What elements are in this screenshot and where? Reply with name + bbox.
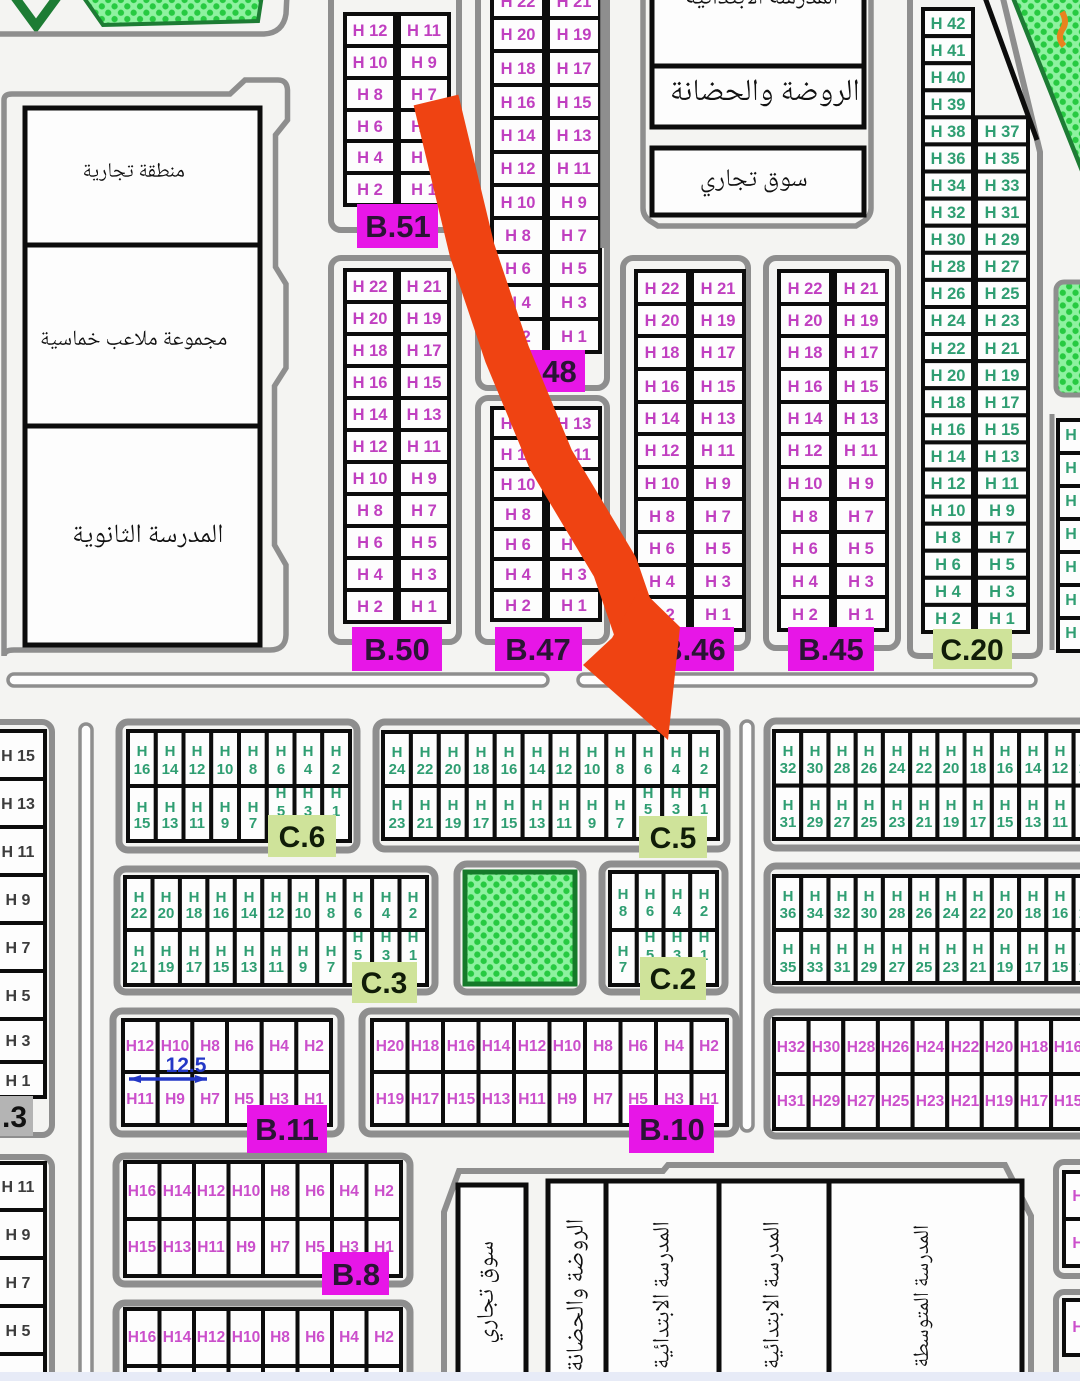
- svg-text:16: 16: [1052, 905, 1069, 922]
- svg-text:11: 11: [189, 815, 205, 832]
- svg-text:14: 14: [241, 905, 258, 922]
- svg-text:H13: H13: [163, 1239, 192, 1256]
- svg-text:H: H: [165, 743, 176, 760]
- svg-text:21: 21: [916, 814, 933, 831]
- svg-text:29: 29: [861, 959, 878, 976]
- svg-text:H 11: H 11: [2, 844, 35, 861]
- svg-text:H8: H8: [270, 1329, 290, 1346]
- svg-text:20: 20: [997, 905, 1014, 922]
- svg-text:14: 14: [529, 761, 546, 778]
- svg-text:H: H: [892, 797, 903, 814]
- svg-text:H 2: H 2: [505, 597, 531, 615]
- svg-text:12: 12: [268, 905, 285, 922]
- svg-text:H 20: H 20: [931, 367, 966, 385]
- svg-text:17: 17: [473, 815, 490, 832]
- svg-text:4: 4: [382, 905, 391, 922]
- svg-text:H: H: [189, 943, 200, 960]
- svg-text:25: 25: [861, 814, 878, 831]
- svg-text:H: H: [1065, 559, 1077, 576]
- svg-text:H8: H8: [593, 1038, 613, 1055]
- svg-text:8: 8: [249, 761, 257, 778]
- svg-text:28: 28: [889, 905, 906, 922]
- svg-text:30: 30: [807, 760, 824, 777]
- svg-text:H: H: [672, 886, 683, 903]
- svg-text:H 14: H 14: [353, 406, 389, 424]
- svg-text:H 4: H 4: [649, 573, 676, 591]
- svg-text:H4: H4: [269, 1038, 289, 1055]
- svg-text:H: H: [645, 929, 656, 946]
- svg-text:H 16: H 16: [501, 94, 536, 112]
- svg-text:4: 4: [304, 761, 313, 778]
- svg-text:H 12: H 12: [788, 442, 823, 460]
- svg-text:10: 10: [295, 905, 312, 922]
- svg-text:H: H: [699, 929, 710, 946]
- svg-text:H18: H18: [411, 1038, 440, 1055]
- svg-text:H10: H10: [553, 1038, 581, 1055]
- svg-text:H: H: [810, 743, 821, 760]
- svg-text:H 20: H 20: [353, 310, 388, 328]
- svg-text:H 21: H 21: [844, 280, 879, 298]
- svg-text:H: H: [892, 743, 903, 760]
- svg-text:H: H: [220, 799, 231, 816]
- svg-text:H 7: H 7: [411, 502, 437, 520]
- svg-text:19: 19: [997, 959, 1014, 976]
- svg-text:H 6: H 6: [935, 556, 961, 574]
- svg-text:H: H: [1055, 941, 1066, 958]
- svg-text:12: 12: [556, 761, 573, 778]
- svg-text:H: H: [1000, 941, 1011, 958]
- svg-text:H28: H28: [847, 1039, 876, 1056]
- svg-text:H 22: H 22: [931, 340, 966, 358]
- svg-text:B.47: B.47: [505, 632, 570, 667]
- svg-text:H: H: [671, 744, 682, 761]
- svg-text:H 3: H 3: [411, 566, 437, 584]
- svg-text:12: 12: [189, 761, 206, 778]
- svg-text:H: H: [837, 797, 848, 814]
- svg-text:H27: H27: [847, 1093, 875, 1110]
- svg-text:H: H: [532, 744, 543, 761]
- svg-text:H9: H9: [236, 1239, 256, 1256]
- svg-text:H16: H16: [447, 1038, 476, 1055]
- svg-text:H: H: [244, 943, 255, 960]
- svg-text:H: H: [892, 888, 903, 905]
- svg-text:H: H: [331, 785, 342, 802]
- svg-text:H 6: H 6: [505, 536, 531, 554]
- svg-text:H: H: [810, 797, 821, 814]
- svg-text:H2: H2: [374, 1183, 394, 1200]
- svg-text:H: H: [1028, 743, 1039, 760]
- svg-text:H 1: H 1: [561, 328, 587, 346]
- svg-text:H 1: H 1: [989, 610, 1015, 628]
- svg-text:H 10: H 10: [788, 475, 823, 493]
- svg-text:H: H: [919, 797, 930, 814]
- svg-text:H: H: [587, 744, 598, 761]
- svg-text:H 18: H 18: [788, 344, 823, 362]
- svg-text:20: 20: [445, 761, 462, 778]
- svg-text:H: H: [618, 943, 629, 960]
- svg-text:6: 6: [646, 903, 654, 920]
- svg-text:C.2: C.2: [650, 963, 697, 996]
- svg-text:H: H: [326, 889, 337, 906]
- svg-text:H 17: H 17: [701, 344, 736, 362]
- svg-text:19: 19: [158, 959, 175, 976]
- svg-text:H 13: H 13: [844, 410, 879, 428]
- svg-text:H: H: [615, 744, 626, 761]
- svg-text:H: H: [448, 744, 459, 761]
- svg-text:H: H: [946, 888, 957, 905]
- svg-text:17: 17: [970, 814, 987, 831]
- svg-text:H 23: H 23: [985, 312, 1020, 330]
- svg-text:H: H: [587, 797, 598, 814]
- svg-text:H 14: H 14: [501, 127, 537, 145]
- svg-text:8: 8: [619, 903, 627, 920]
- svg-text:H: H: [783, 797, 794, 814]
- svg-text:H: H: [946, 941, 957, 958]
- svg-text:22: 22: [417, 761, 434, 778]
- svg-text:H: H: [810, 941, 821, 958]
- svg-text:H: H: [946, 743, 957, 760]
- svg-text:H: H: [408, 889, 419, 906]
- svg-text:H: H: [1028, 941, 1039, 958]
- svg-text:H 39: H 39: [931, 96, 966, 114]
- svg-text:C.6: C.6: [279, 821, 326, 854]
- svg-text:H: H: [1065, 460, 1077, 477]
- svg-text:H7: H7: [270, 1239, 290, 1256]
- svg-text:H: H: [892, 941, 903, 958]
- svg-text:H 21: H 21: [557, 0, 592, 11]
- svg-text:H: H: [165, 799, 176, 816]
- svg-text:2: 2: [700, 761, 708, 778]
- svg-text:H15: H15: [1054, 1093, 1080, 1110]
- svg-text:7: 7: [619, 959, 627, 976]
- svg-text:H 22: H 22: [353, 278, 388, 296]
- svg-text:H16: H16: [1054, 1039, 1080, 1056]
- svg-text:H: H: [1028, 888, 1039, 905]
- svg-text:34: 34: [807, 905, 824, 922]
- svg-text:H 18: H 18: [501, 60, 536, 78]
- svg-text:H 15: H 15: [407, 374, 442, 392]
- svg-text:15: 15: [501, 815, 518, 832]
- svg-text:H11: H11: [197, 1239, 225, 1256]
- svg-text:H24: H24: [916, 1039, 945, 1056]
- svg-text:H8: H8: [270, 1183, 290, 1200]
- svg-text:H 16: H 16: [353, 374, 388, 392]
- svg-text:H: H: [504, 797, 515, 814]
- svg-text:10: 10: [584, 761, 601, 778]
- svg-text:23: 23: [389, 815, 406, 832]
- svg-text:H 1: H 1: [705, 606, 731, 624]
- svg-text:H 5: H 5: [6, 1323, 31, 1340]
- svg-text:H: H: [216, 943, 227, 960]
- svg-text:H: H: [420, 744, 431, 761]
- svg-text:H 11: H 11: [985, 475, 1019, 493]
- svg-text:H16: H16: [128, 1329, 157, 1346]
- svg-text:H: H: [220, 743, 231, 760]
- svg-text:H 15: H 15: [985, 421, 1020, 439]
- svg-text:H 3: H 3: [561, 294, 587, 312]
- svg-text:H 34: H 34: [931, 177, 967, 195]
- svg-text:H 4: H 4: [935, 583, 962, 601]
- svg-text:H 17: H 17: [844, 344, 879, 362]
- svg-text:H 8: H 8: [649, 508, 675, 526]
- svg-text:H: H: [864, 888, 875, 905]
- svg-text:H 14: H 14: [788, 410, 824, 428]
- svg-text:H: H: [134, 943, 145, 960]
- svg-text:H2: H2: [304, 1038, 324, 1055]
- svg-text:H 30: H 30: [931, 231, 966, 249]
- svg-text:H 2: H 2: [935, 610, 961, 628]
- svg-text:H 19: H 19: [985, 367, 1020, 385]
- svg-text:H: H: [559, 744, 570, 761]
- svg-text:H 6: H 6: [505, 260, 531, 278]
- svg-text:H: H: [161, 943, 172, 960]
- svg-text:H 13: H 13: [557, 127, 592, 145]
- svg-text:H12: H12: [197, 1183, 225, 1200]
- svg-text:H 9: H 9: [411, 470, 437, 488]
- svg-text:11: 11: [1052, 814, 1068, 831]
- svg-text:H: H: [783, 941, 794, 958]
- svg-text:H 15: H 15: [557, 94, 592, 112]
- svg-text:H 32: H 32: [931, 204, 966, 222]
- svg-text:H 11: H 11: [407, 22, 441, 40]
- svg-text:H: H: [1065, 493, 1077, 510]
- svg-text:H 17: H 17: [985, 394, 1020, 412]
- svg-text:H: H: [353, 889, 364, 906]
- svg-text:21: 21: [131, 959, 148, 976]
- svg-text:18: 18: [970, 760, 987, 777]
- svg-text:H: H: [973, 797, 984, 814]
- svg-text:23: 23: [943, 959, 960, 976]
- svg-text:H 8: H 8: [357, 502, 383, 520]
- svg-text:H 14: H 14: [645, 410, 681, 428]
- svg-text:H 26: H 26: [931, 285, 966, 303]
- svg-text:22: 22: [131, 905, 148, 922]
- svg-text:21: 21: [970, 959, 987, 976]
- svg-text:B.45: B.45: [798, 632, 863, 667]
- svg-text:H 15: H 15: [1, 748, 35, 765]
- svg-text:H 2: H 2: [792, 606, 818, 624]
- svg-text:29: 29: [807, 814, 824, 831]
- svg-text:C.20: C.20: [940, 634, 1003, 667]
- svg-text:H6: H6: [628, 1038, 648, 1055]
- svg-text:H 18: H 18: [353, 342, 388, 360]
- svg-text:H 5: H 5: [705, 540, 731, 558]
- svg-text:21: 21: [417, 815, 434, 832]
- svg-text:24: 24: [389, 761, 406, 778]
- svg-text:H 15: H 15: [701, 378, 736, 396]
- svg-text:H: H: [1065, 526, 1077, 543]
- svg-text:3: 3: [672, 801, 680, 818]
- svg-text:H: H: [643, 785, 654, 802]
- svg-text:H: H: [381, 889, 392, 906]
- svg-text:H 12: H 12: [353, 438, 388, 456]
- svg-text:.3: .3: [2, 1101, 27, 1134]
- svg-text:H 4: H 4: [357, 149, 384, 167]
- svg-text:H: H: [248, 799, 259, 816]
- svg-text:H 12: H 12: [645, 442, 680, 460]
- svg-text:H 11: H 11: [407, 438, 441, 456]
- svg-text:H 8: H 8: [792, 508, 818, 526]
- svg-text:5: 5: [644, 801, 652, 818]
- svg-text:H 38: H 38: [931, 123, 966, 141]
- svg-text:H: H: [559, 797, 570, 814]
- svg-text:H: H: [134, 889, 145, 906]
- svg-text:22: 22: [970, 905, 987, 922]
- svg-text:13: 13: [162, 815, 179, 832]
- svg-text:H: H: [810, 888, 821, 905]
- svg-text:H 20: H 20: [501, 26, 536, 44]
- svg-text:13: 13: [241, 959, 258, 976]
- svg-text:H26: H26: [881, 1039, 910, 1056]
- svg-text:28: 28: [834, 760, 851, 777]
- svg-text:H 8: H 8: [357, 86, 383, 104]
- svg-text:H: H: [216, 889, 227, 906]
- svg-text:16: 16: [501, 761, 518, 778]
- svg-text:H: H: [973, 941, 984, 958]
- svg-text:8: 8: [616, 761, 624, 778]
- svg-text:H: H: [1028, 797, 1039, 814]
- svg-text:9: 9: [221, 815, 229, 832]
- svg-text:20: 20: [943, 760, 960, 777]
- svg-text:H 16: H 16: [931, 421, 966, 439]
- svg-text:H 13: H 13: [1, 796, 35, 813]
- svg-text:H: H: [837, 941, 848, 958]
- svg-text:10: 10: [217, 761, 234, 778]
- svg-text:H 7: H 7: [561, 227, 587, 245]
- svg-text:H9: H9: [557, 1091, 577, 1108]
- svg-text:H 19: H 19: [701, 312, 736, 330]
- svg-text:H: H: [1000, 743, 1011, 760]
- svg-text:H 1: H 1: [6, 1073, 31, 1090]
- svg-text:H: H: [137, 743, 148, 760]
- svg-text:H: H: [864, 941, 875, 958]
- svg-text:H 5: H 5: [411, 534, 437, 552]
- svg-text:20: 20: [158, 905, 175, 922]
- svg-text:H: H: [420, 797, 431, 814]
- svg-text:H 40: H 40: [931, 69, 966, 87]
- svg-text:13: 13: [1025, 814, 1042, 831]
- svg-text:H: H: [476, 744, 487, 761]
- svg-text:C.5: C.5: [650, 822, 697, 855]
- svg-text:H: H: [276, 785, 287, 802]
- svg-text:H10: H10: [232, 1329, 260, 1346]
- svg-text:H 33: H 33: [985, 177, 1020, 195]
- svg-text:H 42: H 42: [931, 15, 966, 33]
- svg-text:H 9: H 9: [6, 1227, 31, 1244]
- svg-text:18: 18: [186, 905, 203, 922]
- svg-text:16: 16: [997, 760, 1014, 777]
- svg-text:H 5: H 5: [989, 556, 1015, 574]
- svg-text:H 8: H 8: [935, 529, 961, 547]
- svg-text:H: H: [643, 744, 654, 761]
- svg-text:H14: H14: [163, 1329, 192, 1346]
- svg-text:H23: H23: [916, 1093, 945, 1110]
- svg-text:18: 18: [1025, 905, 1042, 922]
- svg-text:H: H: [1000, 797, 1011, 814]
- svg-text:H 29: H 29: [985, 231, 1020, 249]
- svg-text:H21: H21: [951, 1093, 980, 1110]
- svg-text:H 11: H 11: [2, 1179, 35, 1196]
- svg-text:H: H: [303, 743, 314, 760]
- svg-text:19: 19: [943, 814, 960, 831]
- svg-text:2: 2: [409, 905, 417, 922]
- svg-text:23: 23: [889, 814, 906, 831]
- svg-text:H: H: [973, 888, 984, 905]
- svg-text:H 20: H 20: [645, 312, 680, 330]
- svg-text:2: 2: [332, 761, 340, 778]
- svg-text:26: 26: [861, 760, 878, 777]
- svg-text:H 1: H 1: [411, 598, 437, 616]
- svg-text:H: H: [1065, 427, 1077, 444]
- svg-text:H 15: H 15: [844, 378, 879, 396]
- svg-text:H: H: [1055, 743, 1066, 760]
- svg-text:H: H: [671, 785, 682, 802]
- svg-text:H6: H6: [305, 1183, 325, 1200]
- svg-text:H 10: H 10: [501, 476, 536, 494]
- svg-text:H 6: H 6: [357, 118, 383, 136]
- svg-text:H19: H19: [376, 1091, 405, 1108]
- svg-text:H 41: H 41: [931, 42, 966, 60]
- svg-text:15: 15: [213, 959, 230, 976]
- svg-text:H: H: [1055, 888, 1066, 905]
- svg-text:30: 30: [861, 905, 878, 922]
- svg-text:H: H: [699, 785, 710, 802]
- svg-text:H11: H11: [126, 1091, 154, 1108]
- svg-text:11: 11: [268, 959, 284, 976]
- svg-text:H: H: [1065, 592, 1077, 609]
- svg-text:27: 27: [834, 814, 851, 831]
- svg-text:H 11: H 11: [701, 442, 735, 460]
- svg-text:H17: H17: [1020, 1093, 1048, 1110]
- svg-text:H10: H10: [232, 1183, 260, 1200]
- svg-text:24: 24: [943, 905, 960, 922]
- svg-text:H 3: H 3: [705, 573, 731, 591]
- svg-text:H19: H19: [985, 1093, 1014, 1110]
- svg-text:H 36: H 36: [931, 150, 966, 168]
- svg-text:H 7: H 7: [6, 1275, 31, 1292]
- svg-text:H16: H16: [128, 1183, 157, 1200]
- svg-text:H14: H14: [482, 1038, 511, 1055]
- svg-text:H: H: [353, 929, 364, 946]
- svg-text:C.3: C.3: [361, 967, 408, 1000]
- svg-text:H 7: H 7: [6, 940, 31, 957]
- svg-text:H 9: H 9: [411, 54, 437, 72]
- svg-text:H: H: [448, 797, 459, 814]
- svg-text:H: H: [189, 889, 200, 906]
- svg-text:H 18: H 18: [645, 344, 680, 362]
- svg-text:H 3: H 3: [561, 566, 587, 584]
- svg-text:H31: H31: [777, 1093, 806, 1110]
- svg-text:H: H: [1065, 625, 1077, 642]
- svg-text:H 13: H 13: [407, 406, 442, 424]
- svg-text:H 7: H 7: [989, 529, 1015, 547]
- svg-text:H: H: [504, 744, 515, 761]
- svg-text:H 5: H 5: [6, 988, 31, 1005]
- svg-text:H 21: H 21: [985, 340, 1020, 358]
- svg-text:31: 31: [780, 814, 797, 831]
- svg-text:H 9: H 9: [6, 892, 31, 909]
- svg-text:6: 6: [354, 905, 362, 922]
- svg-text:25: 25: [916, 959, 933, 976]
- svg-text:H12: H12: [197, 1329, 225, 1346]
- svg-text:H 22: H 22: [788, 280, 823, 298]
- svg-text:H29: H29: [812, 1093, 841, 1110]
- svg-text:18: 18: [473, 761, 490, 778]
- svg-text:5: 5: [354, 947, 362, 964]
- svg-text:H12: H12: [518, 1038, 546, 1055]
- svg-text:H 8: H 8: [505, 506, 531, 524]
- svg-text:H 5: H 5: [848, 540, 874, 558]
